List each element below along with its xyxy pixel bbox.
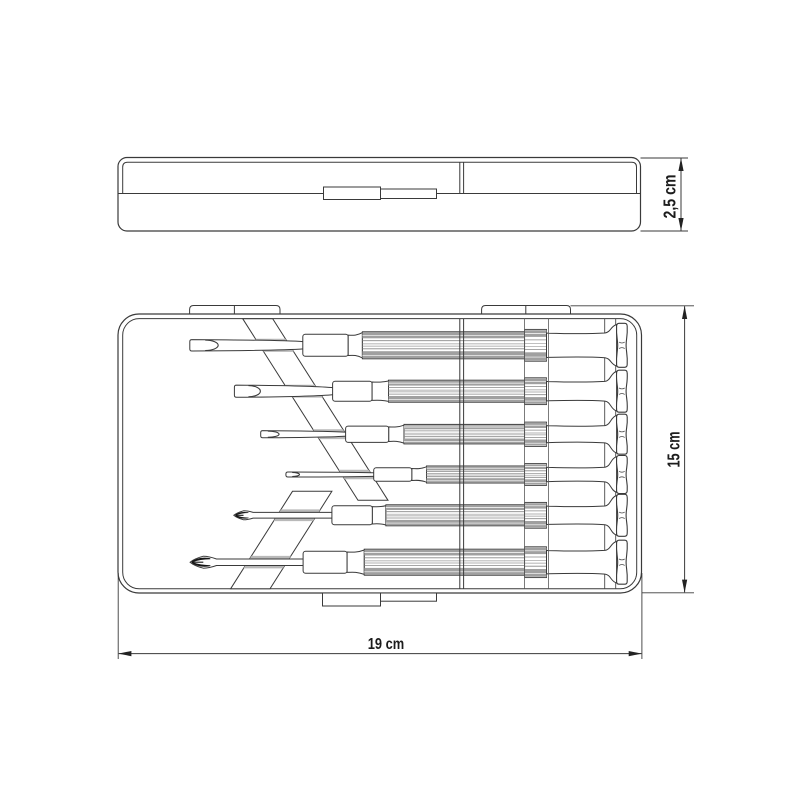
svg-text:2,5 cm: 2,5 cm [660, 175, 680, 219]
svg-text:19 cm: 19 cm [368, 636, 405, 653]
svg-text:15 cm: 15 cm [664, 432, 684, 468]
